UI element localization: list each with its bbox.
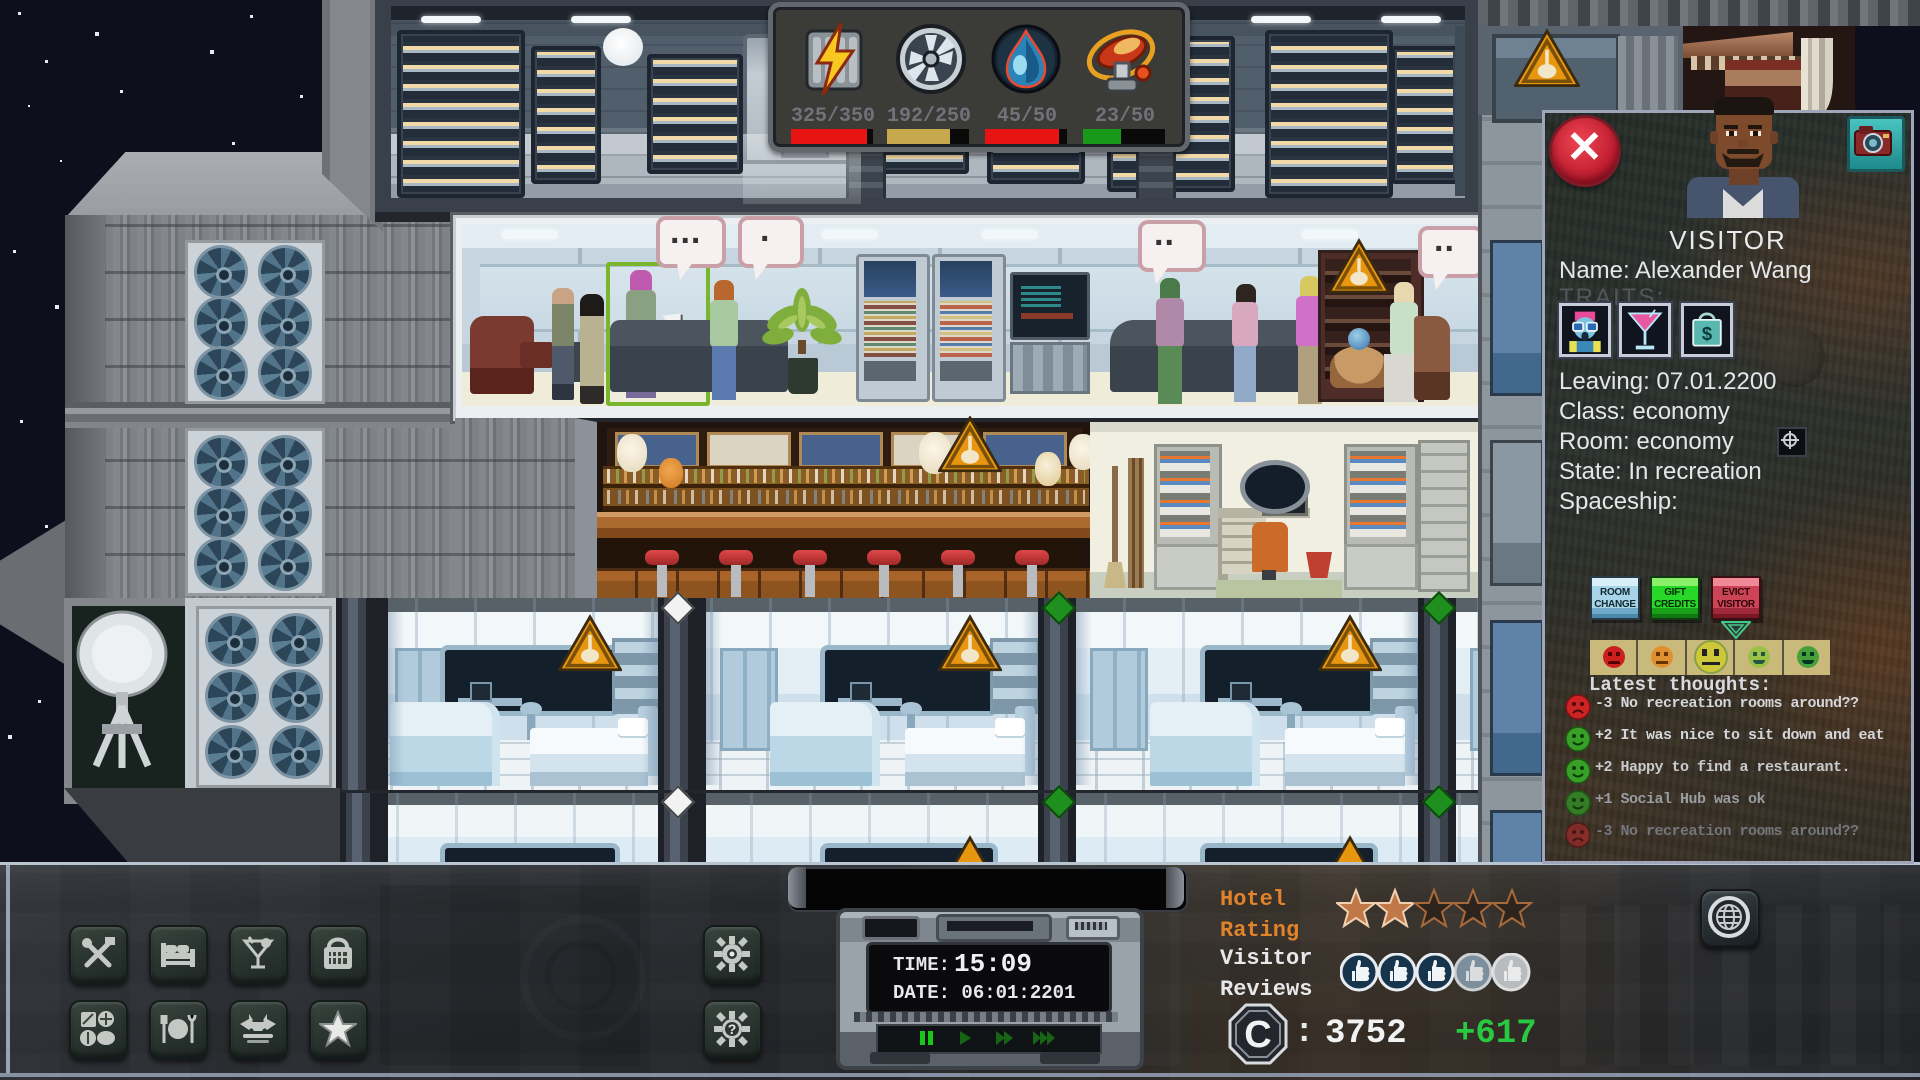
svg-text:?: ? (728, 1021, 737, 1037)
svg-text:$: $ (1702, 323, 1712, 344)
svg-text:C: C (1244, 1014, 1271, 1056)
